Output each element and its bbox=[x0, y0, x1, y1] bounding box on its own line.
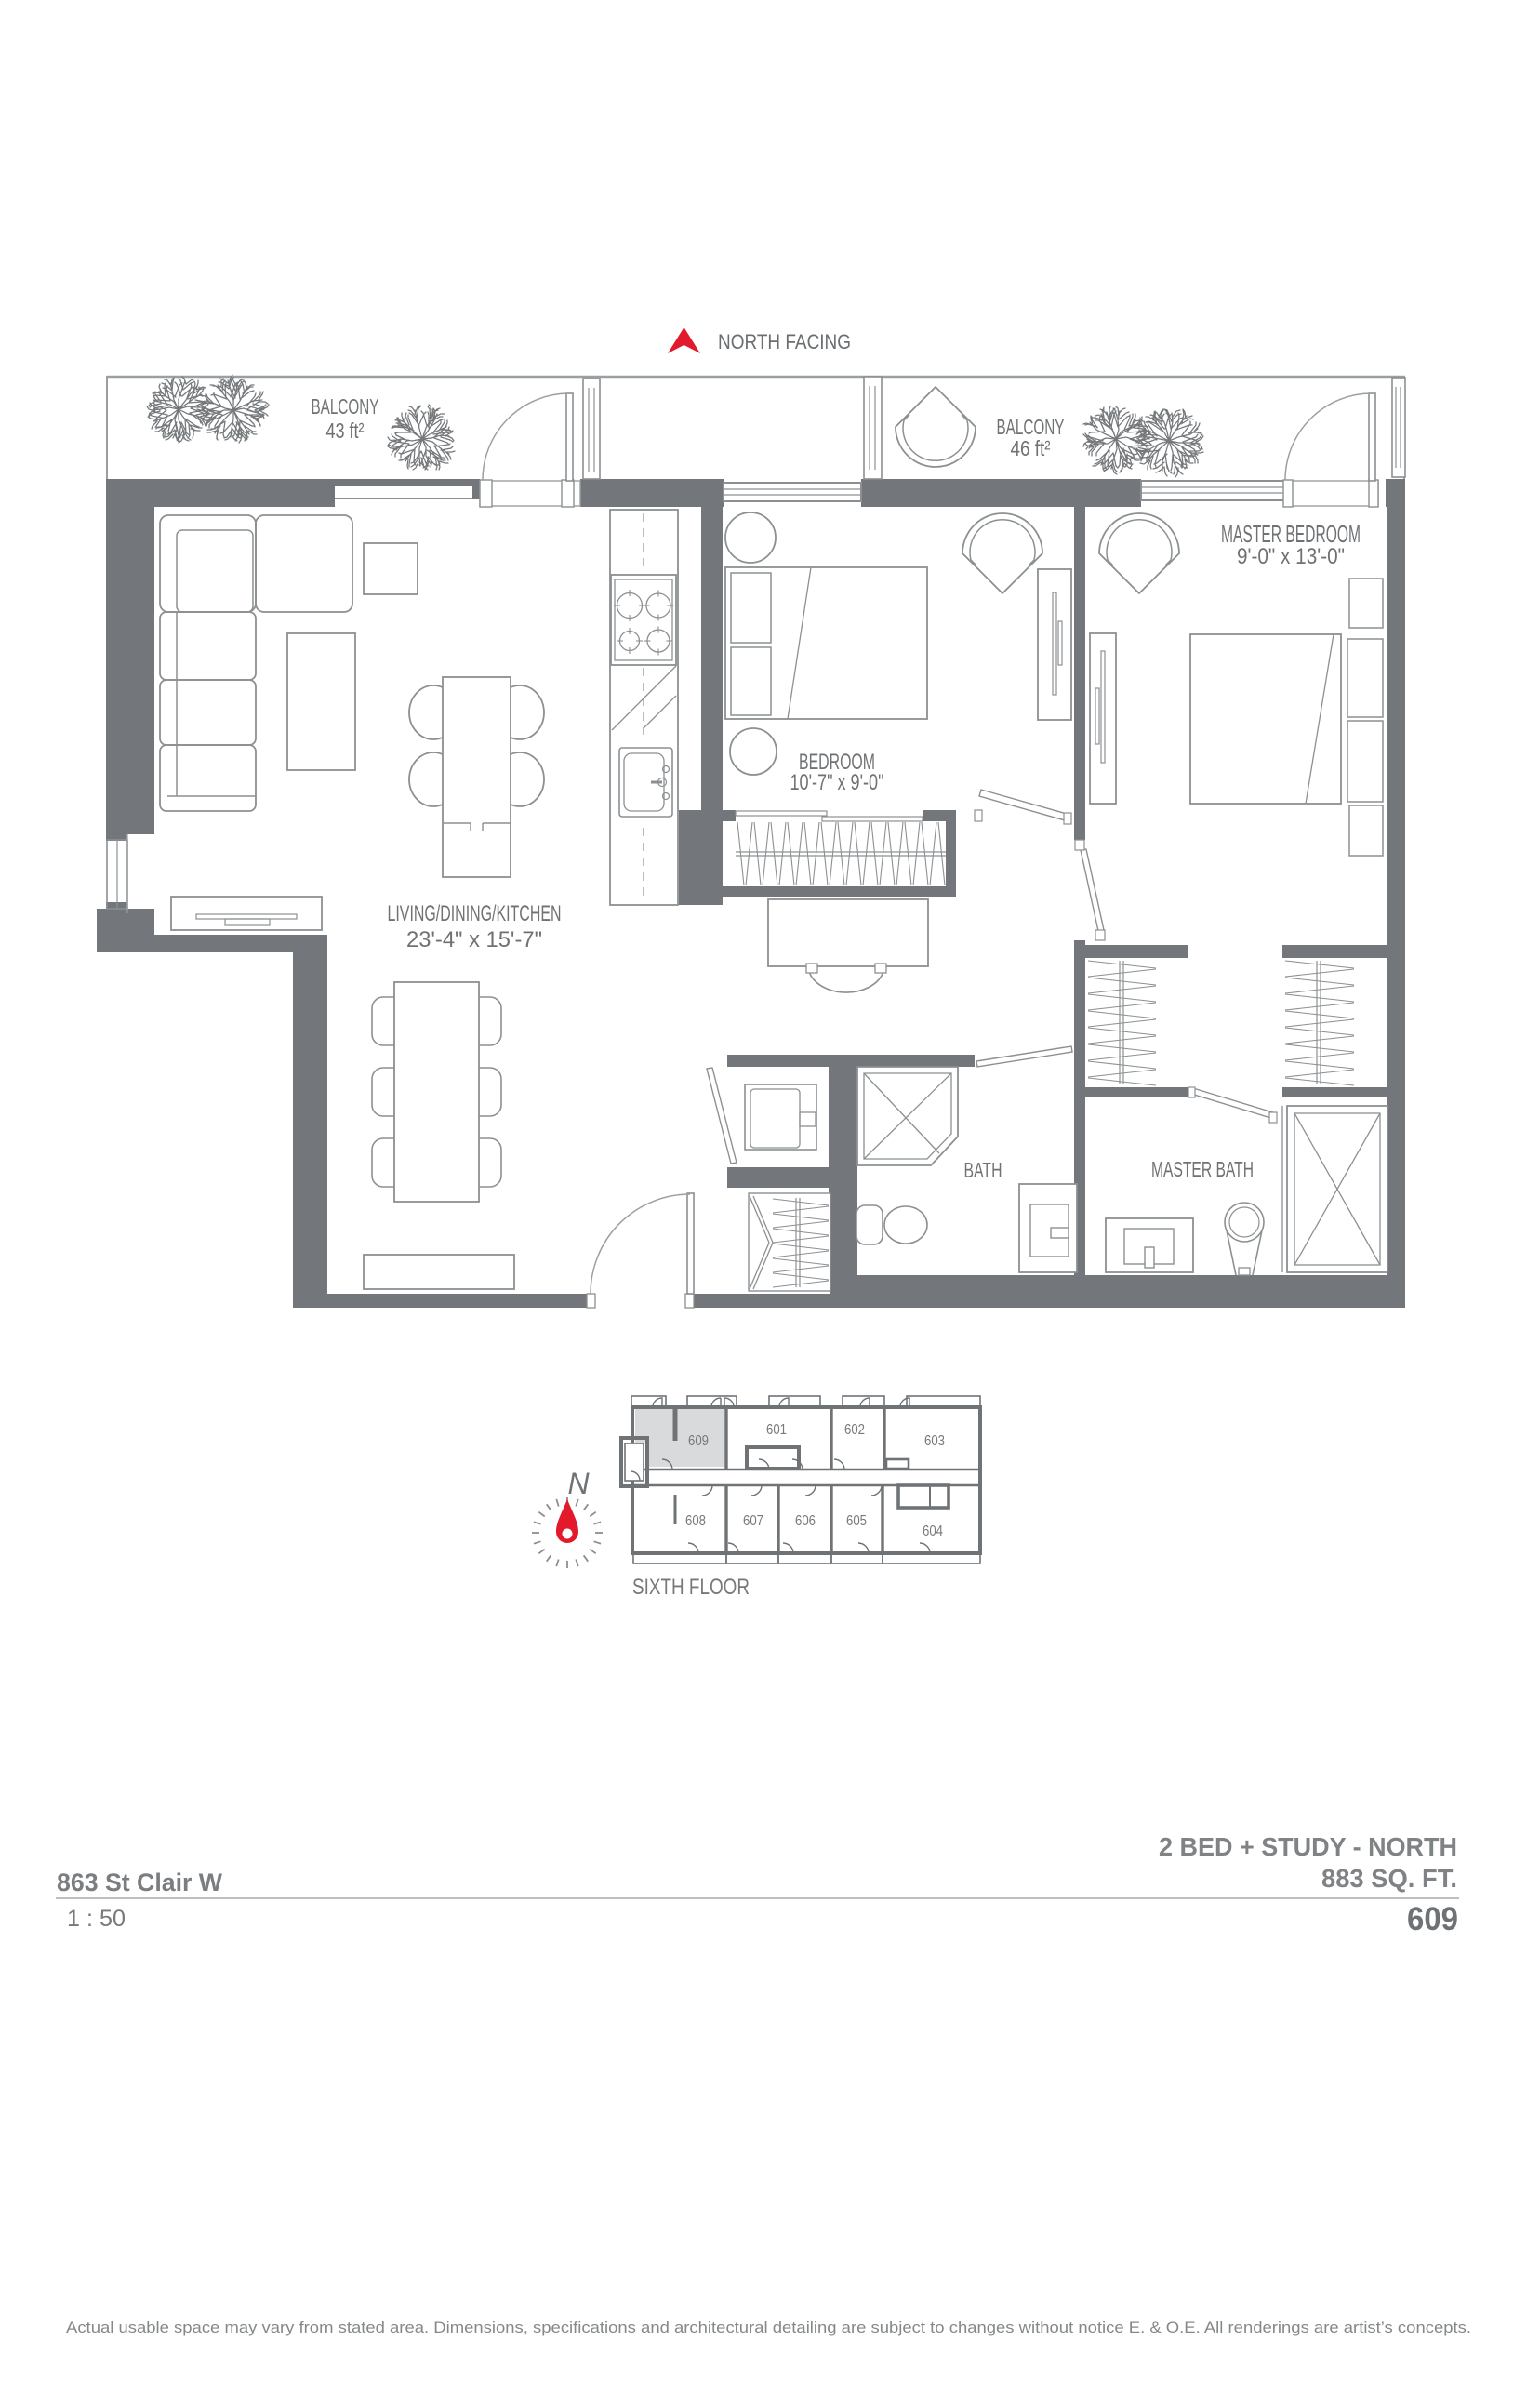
svg-text:601: 601 bbox=[766, 1422, 787, 1438]
svg-text:602: 602 bbox=[844, 1422, 865, 1438]
svg-text:609: 609 bbox=[688, 1433, 709, 1449]
svg-text:N: N bbox=[567, 1467, 590, 1500]
svg-text:883 SQ. FT.: 883 SQ. FT. bbox=[1321, 1864, 1457, 1893]
svg-text:2 BED + STUDY - NORTH: 2 BED + STUDY - NORTH bbox=[1159, 1832, 1457, 1861]
svg-text:BALCONY: BALCONY bbox=[312, 394, 379, 419]
svg-text:10'-7" x 9'-0": 10'-7" x 9'-0" bbox=[790, 770, 884, 795]
svg-text:9'-0" x 13'-0": 9'-0" x 13'-0" bbox=[1237, 544, 1345, 569]
svg-text:605: 605 bbox=[846, 1513, 867, 1529]
svg-text:23'-4" x 15'-7": 23'-4" x 15'-7" bbox=[406, 927, 542, 952]
svg-text:43 ft²: 43 ft² bbox=[326, 419, 365, 443]
svg-text:SIXTH FLOOR: SIXTH FLOOR bbox=[632, 1575, 750, 1600]
svg-text:NORTH FACING: NORTH FACING bbox=[718, 330, 851, 353]
svg-text:Actual usable space may vary f: Actual usable space may vary from stated… bbox=[66, 2320, 1471, 2336]
svg-text:606: 606 bbox=[795, 1513, 816, 1529]
svg-text:608: 608 bbox=[685, 1513, 706, 1529]
svg-text:1 : 50: 1 : 50 bbox=[67, 1906, 126, 1932]
svg-text:LIVING/DINING/KITCHEN: LIVING/DINING/KITCHEN bbox=[388, 901, 562, 926]
svg-text:607: 607 bbox=[743, 1513, 763, 1529]
svg-text:604: 604 bbox=[923, 1523, 943, 1539]
svg-text:603: 603 bbox=[924, 1433, 945, 1449]
svg-text:46 ft²: 46 ft² bbox=[1011, 436, 1051, 460]
svg-text:MASTER BATH: MASTER BATH bbox=[1151, 1157, 1254, 1181]
svg-text:BATH: BATH bbox=[964, 1158, 1002, 1182]
svg-text:609: 609 bbox=[1407, 1901, 1458, 1937]
svg-text:863 St Clair W: 863 St Clair W bbox=[57, 1869, 223, 1896]
